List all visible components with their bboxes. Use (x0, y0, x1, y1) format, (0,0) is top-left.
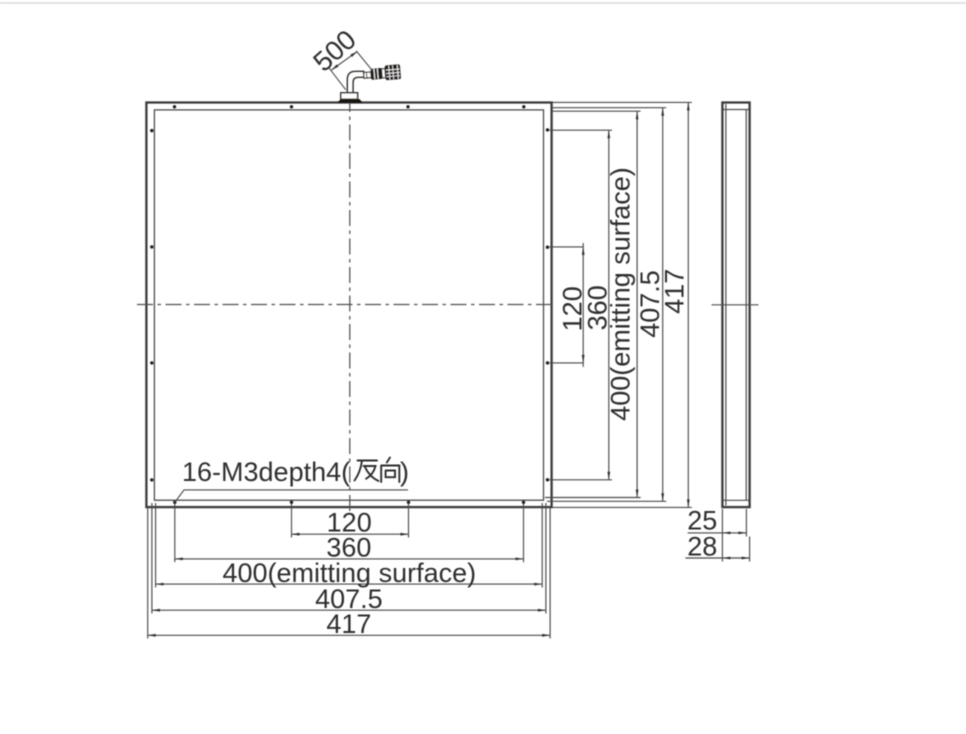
svg-text:): ) (400, 457, 409, 487)
svg-text:500: 500 (307, 24, 362, 78)
svg-text:417: 417 (326, 609, 371, 639)
svg-text:417: 417 (660, 269, 690, 314)
svg-text:28: 28 (687, 531, 717, 561)
svg-text:16-M3depth4(: 16-M3depth4( (182, 457, 350, 487)
svg-text:400(emitting surface): 400(emitting surface) (606, 167, 636, 421)
